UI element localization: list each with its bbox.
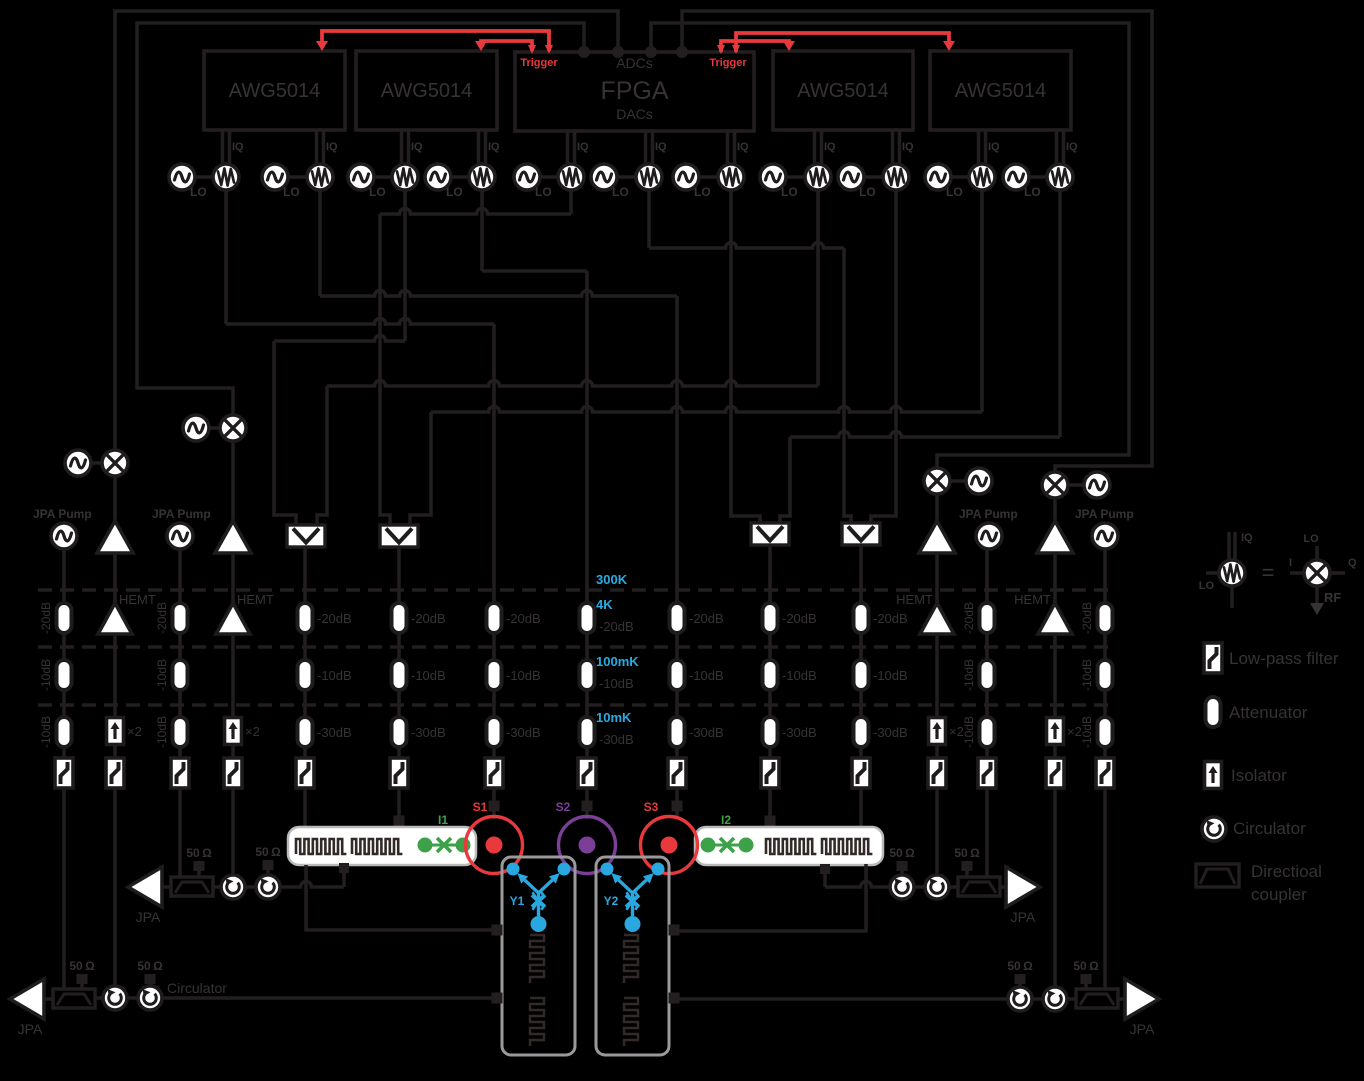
svg-text:IQ: IQ <box>326 141 338 153</box>
svg-text:Trigger: Trigger <box>709 57 747 69</box>
svg-text:50 Ω: 50 Ω <box>889 846 915 860</box>
svg-text:-10dB: -10dB <box>599 676 634 691</box>
svg-text:I2: I2 <box>721 813 731 827</box>
svg-text:-10dB: -10dB <box>1080 716 1094 748</box>
svg-text:S3: S3 <box>644 800 659 814</box>
svg-text:HEMT: HEMT <box>896 592 933 607</box>
svg-text:S1: S1 <box>473 800 488 814</box>
svg-text:-20dB: -20dB <box>962 602 976 634</box>
svg-text:Y2: Y2 <box>604 894 619 908</box>
svg-text:IQ: IQ <box>411 141 423 153</box>
svg-text:-20dB: -20dB <box>317 611 352 626</box>
svg-text:-20dB: -20dB <box>1080 602 1094 634</box>
svg-text:I: I <box>1289 557 1292 569</box>
svg-text:-20dB: -20dB <box>599 619 634 634</box>
svg-text:IQ: IQ <box>577 141 589 153</box>
svg-text:LO: LO <box>781 185 798 199</box>
svg-text:-10dB: -10dB <box>155 716 169 748</box>
svg-text:Y1: Y1 <box>510 894 525 908</box>
svg-text:-30dB: -30dB <box>689 725 724 740</box>
svg-text:AWG5014: AWG5014 <box>955 80 1047 102</box>
svg-text:4K: 4K <box>596 597 613 612</box>
svg-text:50 Ω: 50 Ω <box>954 846 980 860</box>
svg-text:×2: ×2 <box>1067 724 1082 739</box>
svg-text:JPA Pump: JPA Pump <box>33 507 92 521</box>
svg-text:10mK: 10mK <box>596 710 632 725</box>
svg-text:HEMT: HEMT <box>237 592 274 607</box>
svg-text:IQ: IQ <box>1241 532 1253 544</box>
svg-text:LO: LO <box>1199 580 1215 592</box>
svg-text:LO: LO <box>446 185 463 199</box>
svg-text:IQ: IQ <box>988 141 1000 153</box>
svg-text:-30dB: -30dB <box>782 725 817 740</box>
svg-text:-10dB: -10dB <box>39 659 53 691</box>
svg-text:-30dB: -30dB <box>317 725 352 740</box>
svg-text:-10dB: -10dB <box>506 668 541 683</box>
svg-text:50 Ω: 50 Ω <box>137 959 163 973</box>
svg-text:Q: Q <box>1348 557 1357 569</box>
svg-text:JPA: JPA <box>18 1021 43 1037</box>
svg-text:Circulator: Circulator <box>1233 819 1306 838</box>
svg-text:Circulator: Circulator <box>167 980 227 996</box>
svg-text:-10dB: -10dB <box>317 668 352 683</box>
svg-text:-10dB: -10dB <box>39 716 53 748</box>
svg-text:=: = <box>1262 560 1275 585</box>
svg-text:-10dB: -10dB <box>873 668 908 683</box>
svg-text:HEMT: HEMT <box>1014 592 1051 607</box>
svg-text:×2: ×2 <box>245 724 260 739</box>
svg-text:LO: LO <box>1303 533 1319 545</box>
svg-text:JPA: JPA <box>136 909 161 925</box>
svg-text:-10dB: -10dB <box>155 659 169 691</box>
svg-text:JPA Pump: JPA Pump <box>959 507 1018 521</box>
svg-text:IQ: IQ <box>232 141 244 153</box>
svg-text:RF: RF <box>1324 590 1341 605</box>
svg-text:50 Ω: 50 Ω <box>255 845 281 859</box>
svg-text:JPA: JPA <box>1130 1021 1155 1037</box>
svg-text:-10dB: -10dB <box>1080 659 1094 691</box>
svg-text:-10dB: -10dB <box>962 716 976 748</box>
svg-text:IQ: IQ <box>655 141 667 153</box>
svg-text:LO: LO <box>612 185 629 199</box>
svg-text:-20dB: -20dB <box>506 611 541 626</box>
svg-text:300K: 300K <box>596 572 628 587</box>
svg-text:-20dB: -20dB <box>411 611 446 626</box>
svg-text:coupler: coupler <box>1251 885 1307 904</box>
svg-text:50 Ω: 50 Ω <box>69 959 95 973</box>
svg-text:AWG5014: AWG5014 <box>381 80 473 102</box>
svg-text:ADCs: ADCs <box>616 55 653 71</box>
svg-text:Isolator: Isolator <box>1231 766 1287 785</box>
svg-text:50 Ω: 50 Ω <box>1073 959 1099 973</box>
svg-text:IQ: IQ <box>737 141 749 153</box>
svg-text:Low-pass filter: Low-pass filter <box>1229 649 1339 668</box>
svg-text:LO: LO <box>369 185 386 199</box>
svg-text:JPA: JPA <box>1011 909 1036 925</box>
svg-text:FPGA: FPGA <box>600 77 668 105</box>
svg-text:IQ: IQ <box>1066 141 1078 153</box>
svg-text:-30dB: -30dB <box>873 725 908 740</box>
svg-text:IQ: IQ <box>902 141 914 153</box>
svg-text:50 Ω: 50 Ω <box>1007 959 1033 973</box>
svg-text:Trigger: Trigger <box>520 57 558 69</box>
svg-text:LO: LO <box>859 185 876 199</box>
svg-text:50 Ω: 50 Ω <box>186 846 212 860</box>
svg-text:LO: LO <box>283 185 300 199</box>
svg-text:-20dB: -20dB <box>155 602 169 634</box>
svg-text:-10dB: -10dB <box>689 668 724 683</box>
svg-text:LO: LO <box>190 185 207 199</box>
svg-text:LO: LO <box>535 185 552 199</box>
svg-text:×2: ×2 <box>127 724 142 739</box>
svg-text:S2: S2 <box>556 800 571 814</box>
svg-text:JPA Pump: JPA Pump <box>152 507 211 521</box>
svg-text:LO: LO <box>694 185 711 199</box>
svg-text:Directioal: Directioal <box>1251 862 1322 881</box>
svg-text:-10dB: -10dB <box>411 668 446 683</box>
svg-text:-20dB: -20dB <box>39 602 53 634</box>
svg-text:I1: I1 <box>438 813 448 827</box>
svg-text:AWG5014: AWG5014 <box>797 80 889 102</box>
svg-text:-10dB: -10dB <box>962 659 976 691</box>
svg-text:IQ: IQ <box>824 141 836 153</box>
svg-text:-10dB: -10dB <box>782 668 817 683</box>
svg-text:HEMT: HEMT <box>119 592 156 607</box>
svg-text:-20dB: -20dB <box>689 611 724 626</box>
svg-text:AWG5014: AWG5014 <box>229 80 321 102</box>
svg-text:-30dB: -30dB <box>506 725 541 740</box>
svg-text:IQ: IQ <box>488 141 500 153</box>
svg-text:×2: ×2 <box>949 724 964 739</box>
svg-text:JPA Pump: JPA Pump <box>1075 507 1134 521</box>
svg-text:Attenuator: Attenuator <box>1229 703 1308 722</box>
svg-text:-20dB: -20dB <box>873 611 908 626</box>
svg-text:-30dB: -30dB <box>599 732 634 747</box>
svg-text:-30dB: -30dB <box>411 725 446 740</box>
svg-text:100mK: 100mK <box>596 654 639 669</box>
svg-text:-20dB: -20dB <box>782 611 817 626</box>
svg-text:LO: LO <box>1024 185 1041 199</box>
svg-text:DACs: DACs <box>616 106 653 122</box>
svg-text:LO: LO <box>946 185 963 199</box>
